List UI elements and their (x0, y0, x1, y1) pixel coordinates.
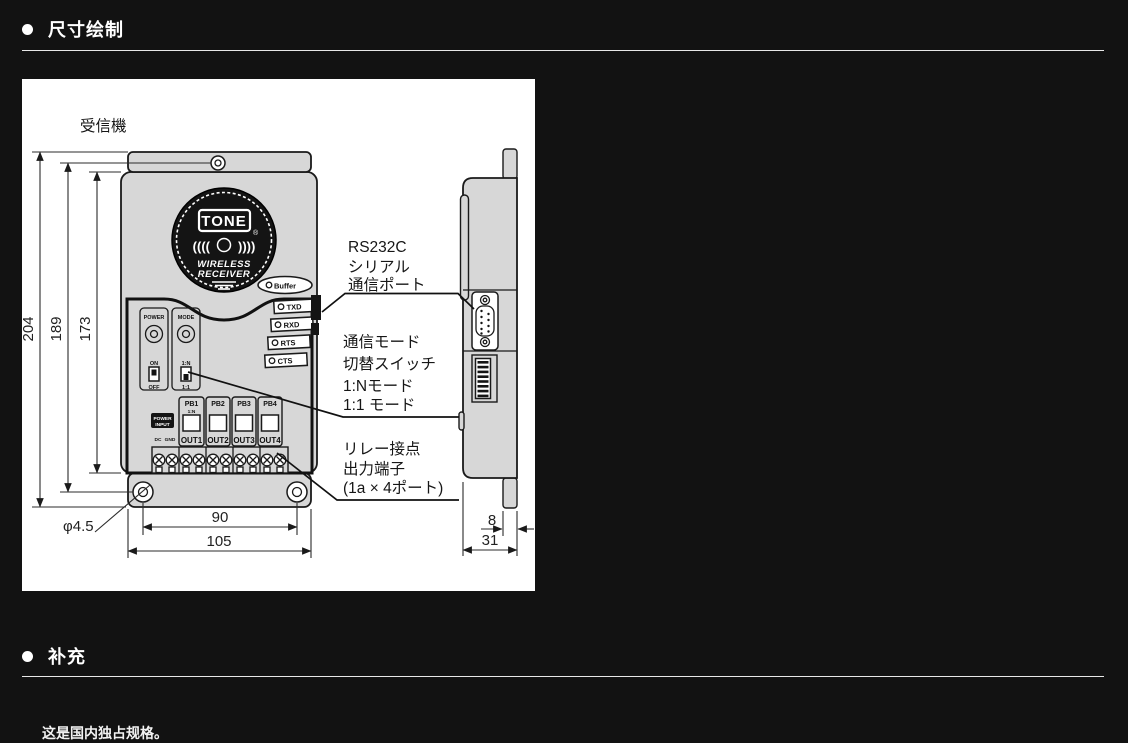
device-label: 受信機 (80, 117, 127, 135)
side-view (459, 149, 517, 508)
logo-reg-mark: ® (253, 229, 259, 237)
dimension-drawing-figure: 受信機 TONE ® (((( )))) WIRELESS RECEIVER (22, 79, 535, 591)
out2-label: OUT2 (207, 436, 229, 445)
dim-height-total: 204 (22, 316, 37, 341)
dip-switch-icon (472, 355, 497, 402)
rs232c-line1: RS232C (348, 239, 407, 256)
dc-label: DC (155, 437, 162, 443)
dim-height-mount: 189 (48, 316, 65, 341)
receiver-dimension-drawing: 受信機 TONE ® (((( )))) WIRELESS RECEIVER (22, 79, 535, 591)
top-screw-icon (211, 156, 225, 170)
buffer-led-label: Buffer (274, 282, 296, 291)
pb1-label: PB1 (185, 401, 199, 408)
buffer-led: Buffer (258, 277, 312, 294)
power-input-label2: INPUT (155, 422, 169, 428)
pb4-button-icon (262, 415, 279, 431)
mode-switch-line4: 1:1 モード (343, 397, 415, 414)
dim-depth-plate: 8 (488, 512, 496, 529)
dim-depth-total: 31 (482, 532, 499, 549)
rs232c-line2: シリアル (348, 259, 410, 276)
annotation-rs232c: RS232C シリアル 通信ポート (322, 239, 474, 312)
out3-label: OUT3 (233, 436, 255, 445)
on-label: ON (150, 361, 158, 367)
logo-wave-left: (((( (193, 239, 211, 254)
mode-switch-line2: 切替スイッチ (343, 355, 436, 373)
gnd-label: GND (165, 437, 176, 443)
bullet-icon (22, 24, 33, 35)
dim-width-total: 105 (206, 533, 231, 550)
dim-hole: φ4.5 (63, 518, 94, 535)
relay-line2: 出力端子 (343, 460, 405, 478)
pb3-label: PB3 (237, 401, 251, 408)
mode-switch-line1: 通信モード (343, 333, 421, 351)
terminal-block (152, 447, 288, 473)
led-txd: TXD (286, 302, 302, 312)
tone-logo: TONE ® (((( )))) WIRELESS RECEIVER (172, 188, 276, 292)
side-nub (459, 412, 464, 430)
section-divider (22, 50, 1104, 51)
section-header-dimensions: 尺寸绘制 (22, 16, 124, 42)
bottom-mount-tab (128, 473, 311, 507)
mode-label: MODE (178, 315, 195, 321)
section-title-dimensions: 尺寸绘制 (48, 16, 124, 42)
db9-connector-icon (472, 292, 498, 350)
side-bezel (461, 195, 469, 300)
pb2-button-icon (210, 415, 227, 431)
logo-brand: TONE (201, 213, 246, 230)
mount-hole-right-icon (287, 482, 307, 502)
logo-wave-right: )))) (238, 239, 255, 254)
mode-switch-line3: 1:Nモード (343, 378, 414, 395)
front-view: TONE ® (((( )))) WIRELESS RECEIVER Buffe… (121, 152, 321, 507)
off-label: OFF (149, 385, 161, 391)
section-header-supplement: 补充 (22, 643, 86, 669)
relay-line1: リレー接点 (343, 440, 421, 458)
power-label: POWER (144, 315, 165, 321)
pb1-mode-label: 1:N (188, 409, 196, 415)
led-rts: RTS (280, 338, 295, 348)
section-title-supplement: 补充 (48, 643, 86, 669)
out1-label: OUT1 (181, 436, 203, 445)
mode-n-label: 1:N (182, 361, 191, 367)
power-input-label1: POWER (153, 416, 172, 422)
page: { "page": {"background": "#121212"}, "se… (0, 0, 1128, 738)
dim-width-mount: 90 (212, 509, 229, 526)
relay-line3: (1a × 4ポート) (343, 479, 443, 497)
bullet-icon (22, 651, 33, 662)
supplement-note: 这是国内独占规格。 (42, 723, 168, 743)
mode-one-label: 1:1 (182, 385, 190, 391)
side-top-tab (503, 149, 517, 179)
serial-port-edge (311, 295, 321, 320)
pb1-button-icon (183, 415, 200, 431)
rs232c-line3: 通信ポート (348, 276, 426, 294)
out4-label: OUT4 (259, 436, 281, 445)
dim-height-body: 173 (77, 316, 94, 341)
led-cts: CTS (277, 356, 292, 366)
side-bottom-tab (503, 478, 517, 508)
pb4-label: PB4 (263, 401, 277, 408)
pb3-button-icon (236, 415, 253, 431)
section-divider (22, 676, 1104, 677)
logo-sub2: RECEIVER (198, 269, 251, 280)
pb2-label: PB2 (211, 401, 225, 408)
pb-columns: PB1 PB2 PB3 PB4 1:N OUT1 OUT2 OUT3 OUT4 (179, 397, 282, 446)
led-rxd: RXD (283, 320, 300, 330)
logo-speaker-dot (218, 239, 231, 252)
